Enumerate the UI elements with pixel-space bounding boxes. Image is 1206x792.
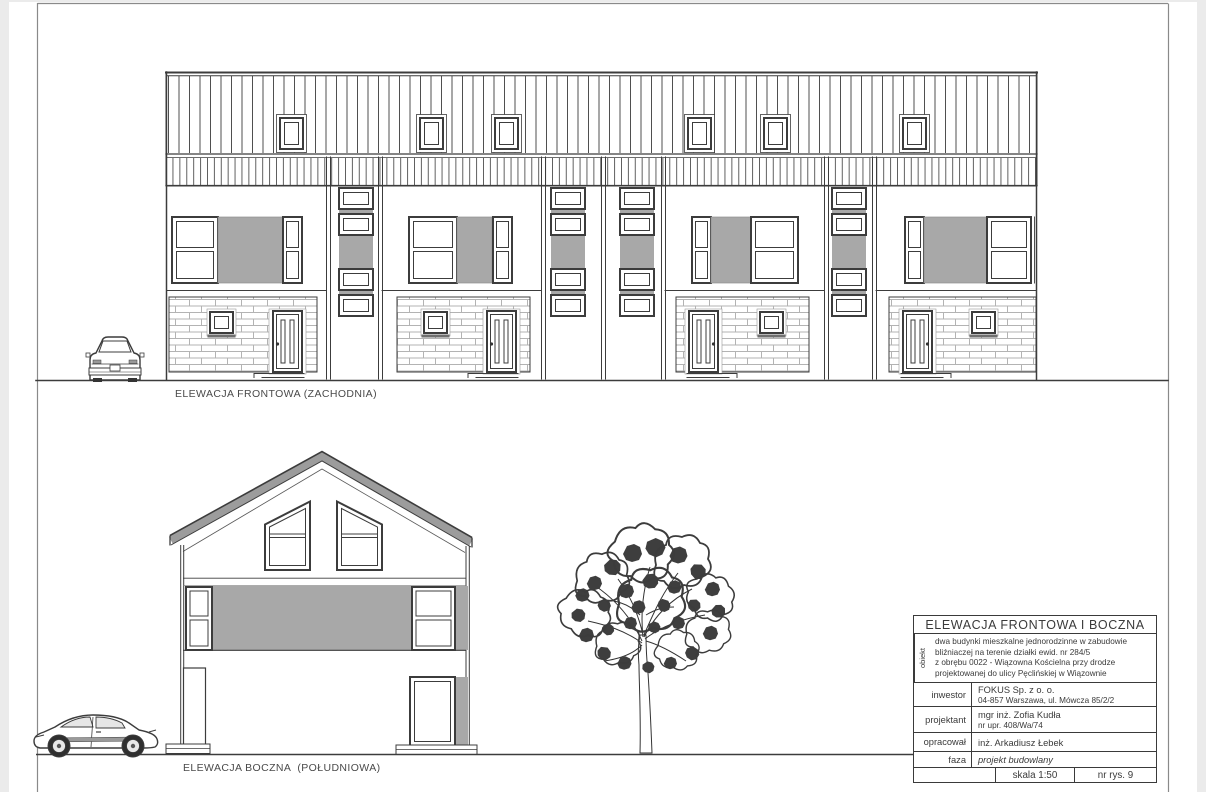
drawing-number: nr rys. 9	[1075, 768, 1156, 782]
entry-door	[899, 309, 936, 374]
title-block: ELEWACJA FRONTOWA I BOCZNA obiekt dwa bu…	[913, 615, 1157, 783]
roof-skylight-4	[685, 115, 715, 153]
front-unit-1	[169, 217, 317, 378]
entry-door	[269, 309, 306, 374]
car-wheel-rear	[48, 735, 70, 757]
investor-address: 04-857 Warszawa, ul. Mówcza 85/2/2	[978, 696, 1114, 706]
investor-name: FOKUS Sp. z o. o.	[978, 685, 1114, 696]
object-description: dwa budynki mieszkalne jednorodzinne w z…	[930, 634, 1131, 682]
object-description-line: projektowanej do ulicy Pęclińskiej w Wią…	[935, 669, 1127, 680]
facade-panel	[924, 217, 987, 283]
phase-value: projekt budowlany	[978, 755, 1053, 766]
window-narrow	[283, 217, 302, 283]
title-block-scale-row: skala 1:50 nr rys. 9	[914, 767, 1156, 782]
window-narrow	[493, 217, 512, 283]
side-door-right	[410, 677, 468, 746]
drawing-sheet: ELEWACJA FRONTOWA (ZACHODNIA) ELEWACJA B…	[0, 0, 1206, 792]
side-door-left	[184, 668, 206, 752]
designer-license: nr upr. 408/Wa/74	[978, 721, 1061, 731]
object-description-line: dwa budynki mieszkalne jednorodzinne w z…	[935, 637, 1127, 648]
title-block-designer-row: projektant mgr inż. Zofia Kudła nr upr. …	[914, 706, 1156, 732]
window-large	[172, 217, 218, 283]
basement-window	[757, 309, 786, 338]
stair-window-stack-3	[620, 188, 654, 316]
title-block-phase-row: faza projekt budowlany	[914, 751, 1156, 767]
roof-skylight-1	[277, 115, 307, 153]
facade-panel	[457, 217, 492, 283]
roof-skylight-3	[492, 115, 522, 153]
window-narrow	[905, 217, 924, 283]
title-block-prepared-row: opracował inż. Arkadiusz Łebek	[914, 732, 1156, 751]
designer-name: mgr inż. Zofia Kudła	[978, 710, 1061, 721]
window-large	[409, 217, 457, 283]
designer-label: projektant	[914, 707, 972, 732]
object-label: obiekt	[914, 634, 930, 682]
object-description-line: bliźniaczej na terenie działki ewid. nr …	[935, 648, 1127, 659]
basement-window	[207, 309, 236, 338]
front-elevation-drawing	[36, 72, 1168, 382]
stair-window-stack-2	[551, 188, 585, 316]
front-unit-2	[397, 217, 530, 378]
roof-skylight-5	[761, 115, 791, 153]
entry-door	[483, 309, 520, 374]
title-block-object-row: obiekt dwa budynki mieszkalne jednorodzi…	[914, 633, 1156, 682]
prepared-name: inż. Arkadiusz Łebek	[978, 738, 1063, 749]
facade-panel	[711, 217, 751, 283]
stair-window-stack-4	[832, 188, 866, 316]
window-narrow	[692, 217, 711, 283]
phase-label: faza	[914, 752, 972, 767]
scale-row-empty-cell	[914, 768, 995, 782]
side-window-left	[186, 587, 212, 650]
prepared-label: opracował	[914, 733, 972, 751]
roof-skylight-2	[417, 115, 447, 153]
title-block-investor-row: inwestor FOKUS Sp. z o. o. 04-857 Warsza…	[914, 682, 1156, 706]
stair-window-stack-1	[339, 188, 373, 316]
window-large	[987, 217, 1035, 283]
facade-panel	[218, 217, 283, 283]
car-wheel-front	[122, 735, 144, 757]
basement-window	[421, 309, 450, 338]
drawing-scale: skala 1:50	[995, 768, 1075, 782]
investor-label: inwestor	[914, 683, 972, 706]
roof-skylight-6	[900, 115, 930, 153]
side-elevation-label: ELEWACJA BOCZNA (POŁUDNIOWA)	[183, 762, 381, 774]
front-unit-3	[676, 217, 809, 378]
front-elevation-label: ELEWACJA FRONTOWA (ZACHODNIA)	[175, 388, 377, 400]
window-large	[751, 217, 798, 283]
side-window-right	[412, 587, 455, 650]
entry-door	[685, 309, 722, 374]
front-unit-4	[889, 217, 1036, 378]
title-block-title: ELEWACJA FRONTOWA I BOCZNA	[914, 616, 1156, 633]
basement-window	[969, 309, 998, 338]
object-description-line: z obrębu 0022 - Wiązowna Kościelna przy …	[935, 658, 1127, 669]
